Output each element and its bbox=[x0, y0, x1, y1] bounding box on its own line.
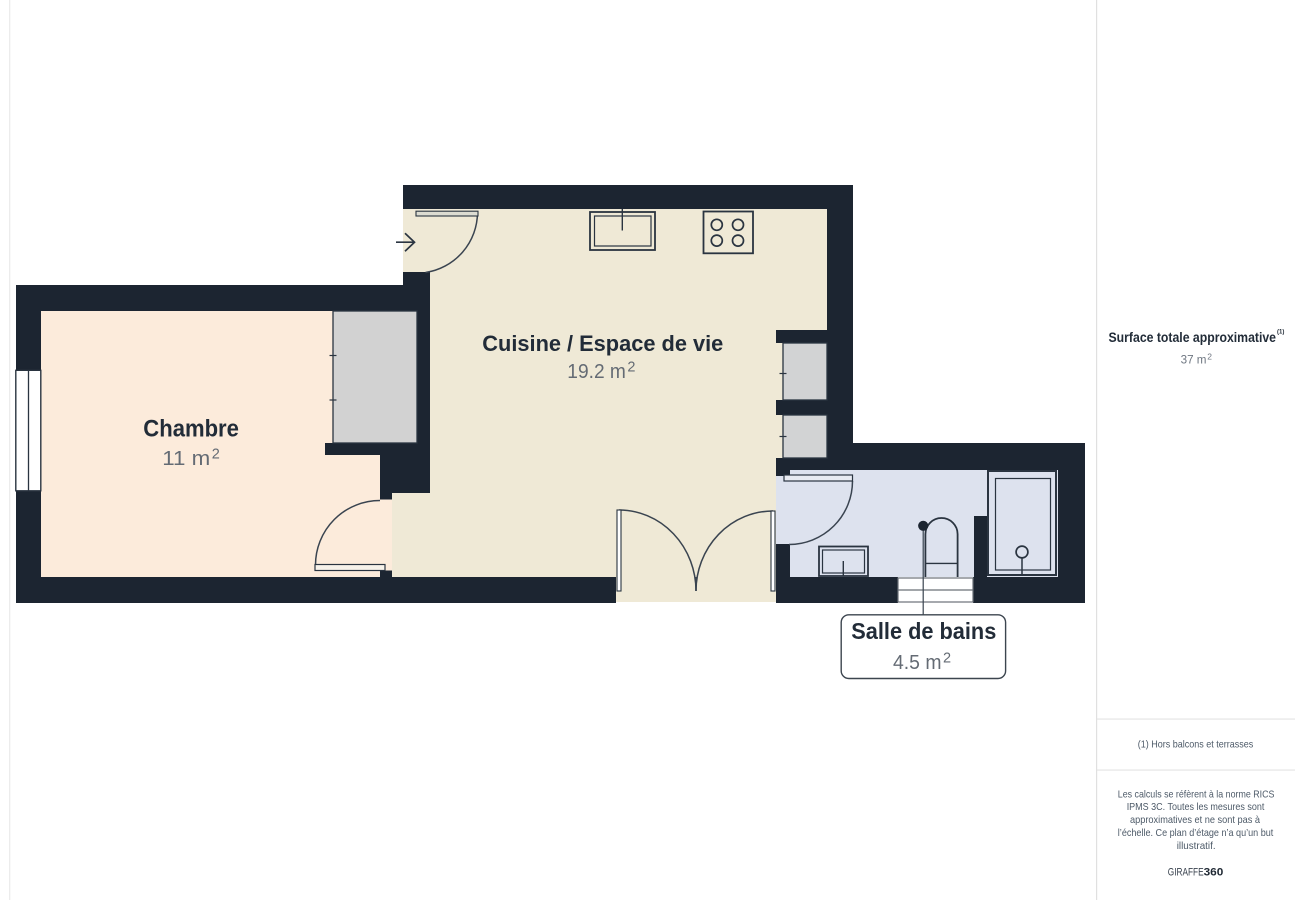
svg-text:Les calculs se réfèrent à la n: Les calculs se réfèrent à la norme RICS bbox=[1118, 789, 1275, 800]
svg-text:IPMS 3C. Toutes les mesures so: IPMS 3C. Toutes les mesures sont bbox=[1127, 802, 1265, 813]
svg-text:approximatives et ne sont pas: approximatives et ne sont pas à bbox=[1130, 815, 1260, 826]
svg-text:Surface totale approximative: Surface totale approximative bbox=[1109, 330, 1277, 345]
svg-text:(1): (1) bbox=[1277, 330, 1284, 336]
svg-text:(1) Hors balcons et terrasses: (1) Hors balcons et terrasses bbox=[1138, 740, 1254, 751]
svg-text:Salle de bains: Salle de bains bbox=[851, 618, 996, 644]
svg-text:19.2 m2: 19.2 m2 bbox=[567, 359, 635, 383]
svg-text:Chambre: Chambre bbox=[143, 415, 239, 442]
svg-text:illustratif.: illustratif. bbox=[1177, 841, 1216, 852]
svg-text:Cuisine / Espace de vie: Cuisine / Espace de vie bbox=[482, 331, 723, 356]
svg-text:l’échelle. Ce plan d’étage n’a: l’échelle. Ce plan d’étage n’a qu’un but bbox=[1118, 828, 1274, 839]
svg-text:GIRAFFE360: GIRAFFE360 bbox=[1168, 867, 1224, 879]
